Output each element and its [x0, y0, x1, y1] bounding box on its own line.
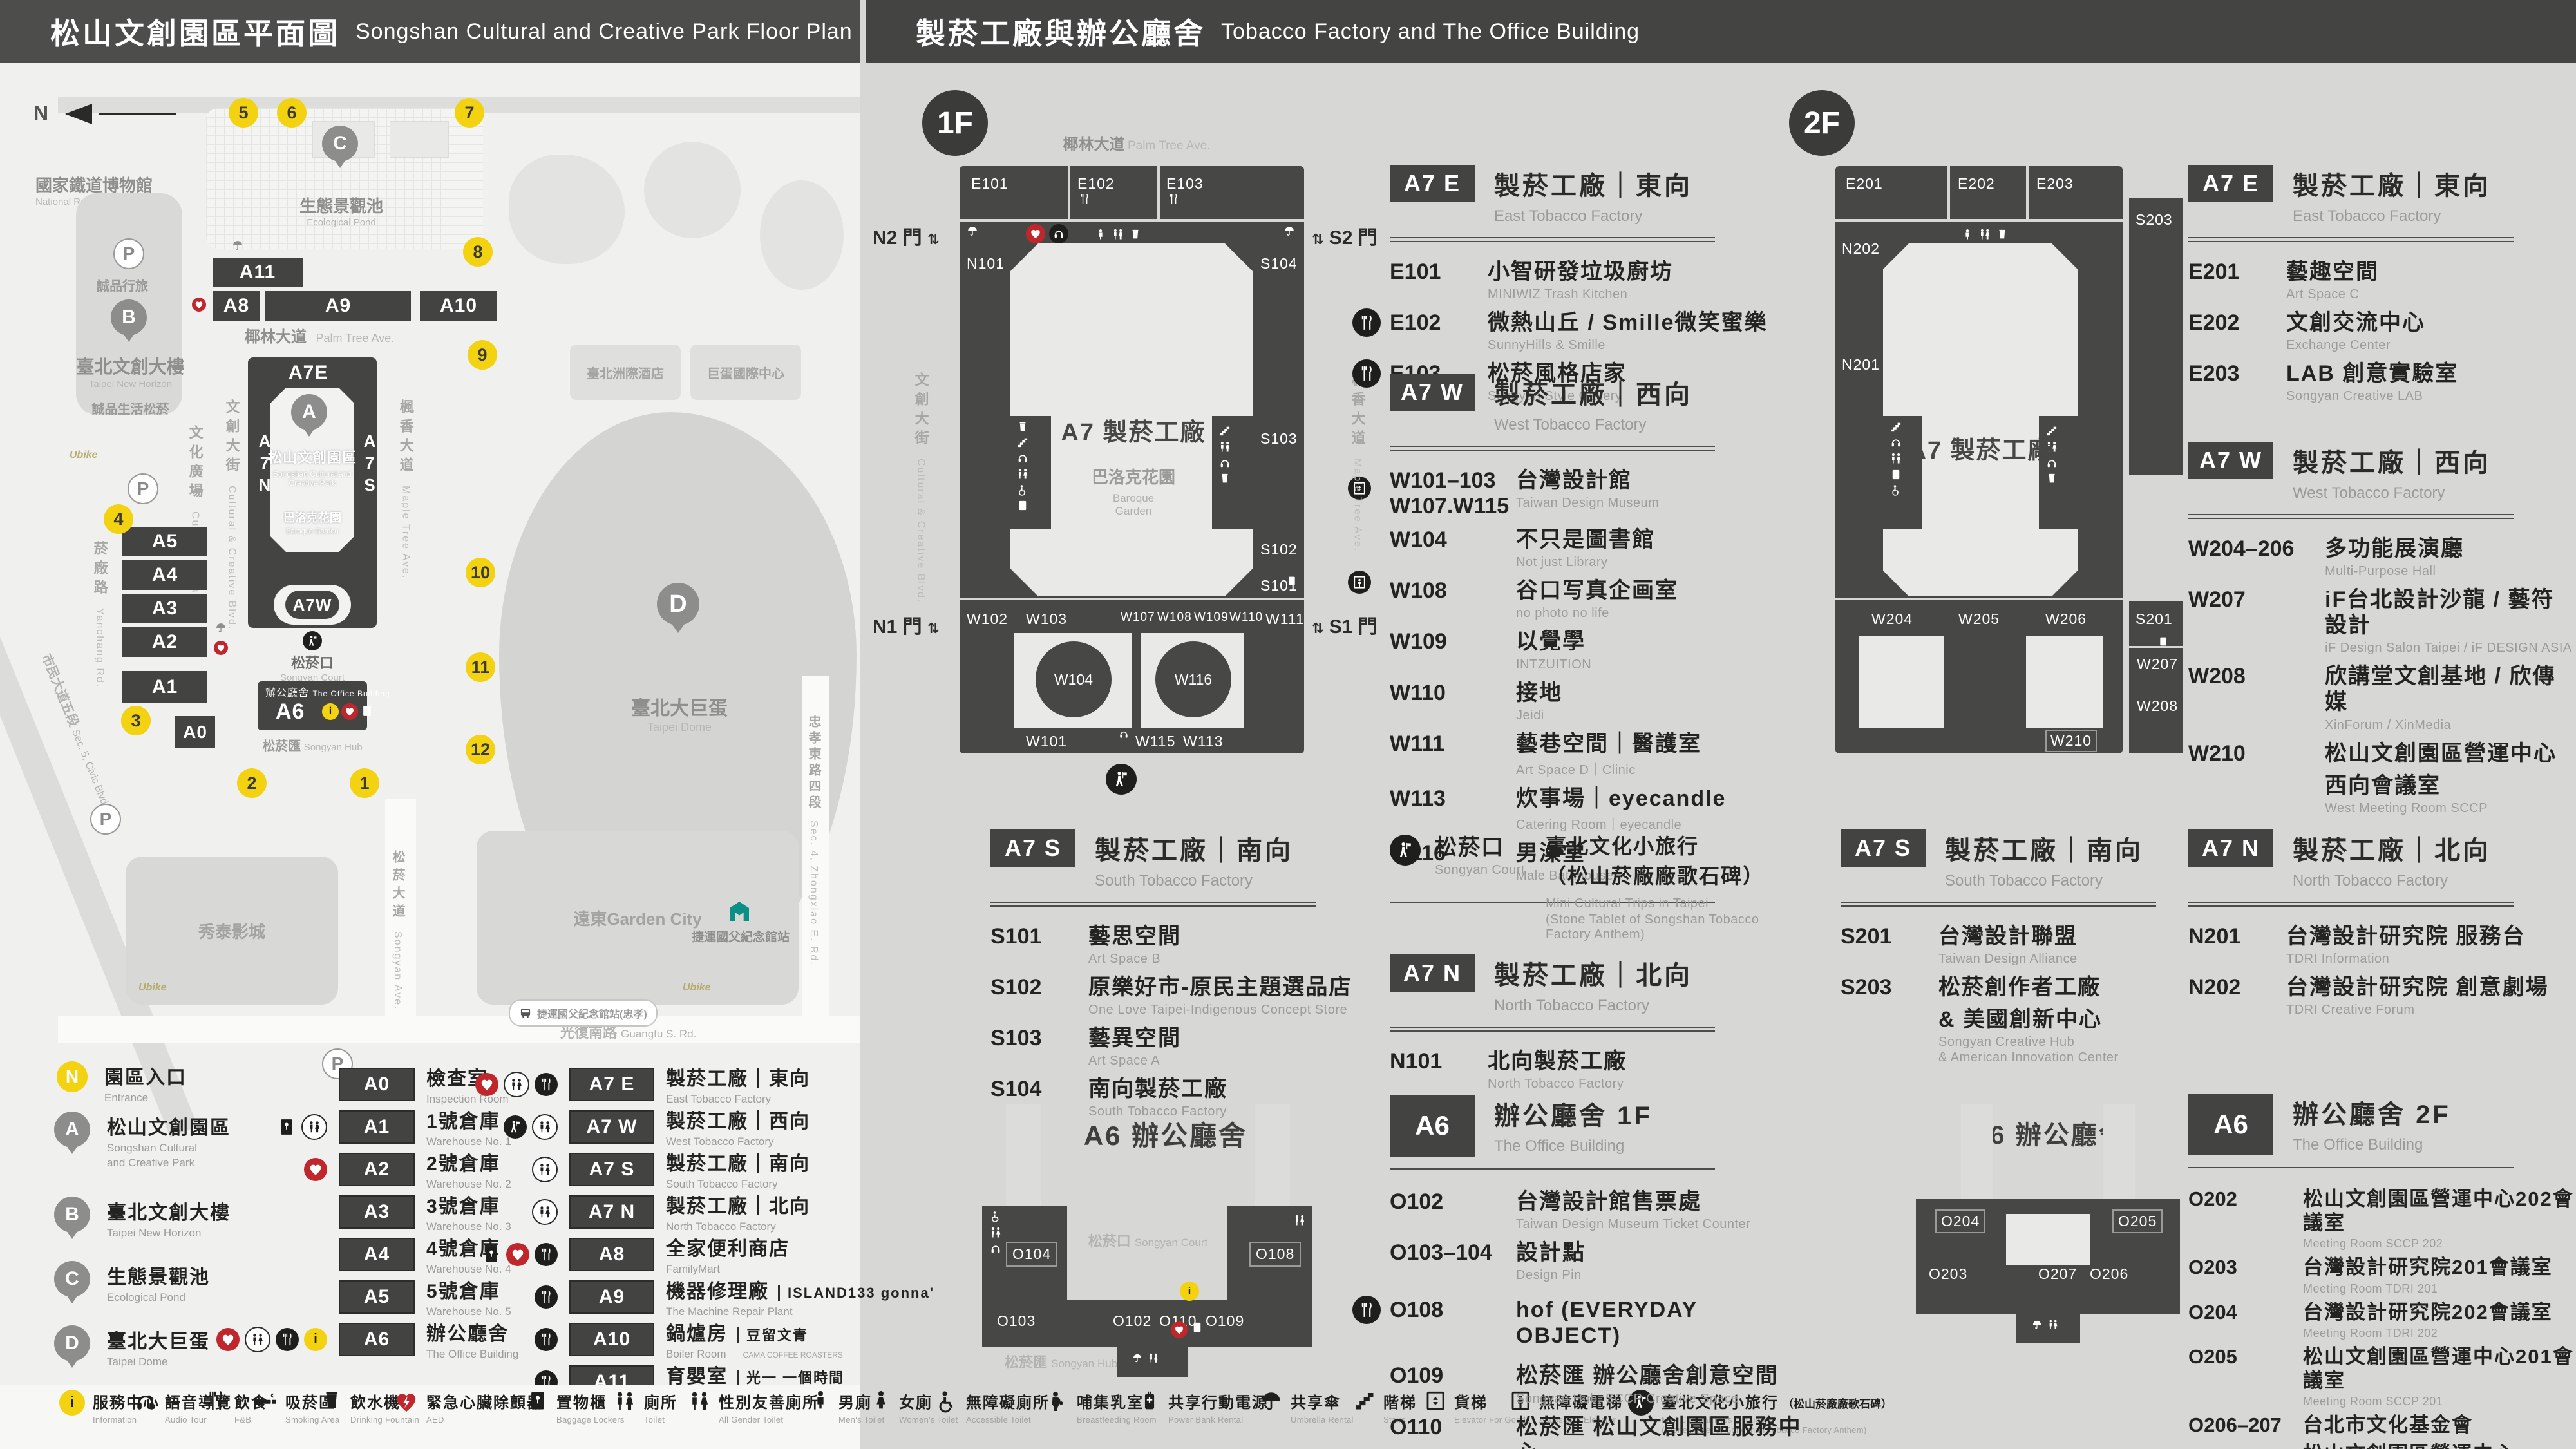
- room-code: W208: [2188, 663, 2325, 732]
- footer-aed-en: AED: [426, 1415, 544, 1425]
- room-code: W108: [1390, 578, 1516, 621]
- divider: [1390, 237, 1715, 242]
- legend-dome-text: 臺北大巨蛋Taipei Dome: [107, 1325, 210, 1368]
- headset-icon: [134, 1390, 157, 1413]
- plan2-room-n202: N202: [1842, 240, 1880, 258]
- gate-s2-label: S2 門: [1329, 227, 1378, 249]
- divider: [2188, 237, 2514, 242]
- mini-trip-icon: [504, 1115, 527, 1139]
- section-2f-south: A7 S 製菸工廠｜南向South Tobacco Factory S201台灣…: [1841, 829, 2188, 1065]
- umbrella-icon: [232, 240, 243, 251]
- section-a6-2f-header: A6 辦公廳舍 2FThe Office Building: [2188, 1094, 2575, 1155]
- a6-right-icons: [1293, 1214, 1306, 1227]
- plan1-gate-n1: N1 門 ⇅: [873, 611, 939, 639]
- legend-a10-icons: [461, 1328, 558, 1351]
- rooms-1f-south: S101藝思空間Art Space B S102原樂好市-原民主題選品店One …: [990, 923, 1377, 1119]
- toilet-icon: [532, 1114, 558, 1140]
- zhongxiao-zh: 忠孝東路四段: [806, 715, 820, 811]
- plan1-room-w107: W107: [1121, 611, 1155, 625]
- room-text: 不只是圖書館Not just Library: [1516, 527, 1655, 570]
- plan1-room-w101: W101: [1026, 733, 1067, 750]
- building-a3: A3: [122, 594, 207, 623]
- room-code: W109: [1390, 629, 1516, 672]
- plan2-top-icons: [1962, 228, 2008, 241]
- room-code: E102: [1390, 310, 1488, 353]
- a6-room-o109: O109: [1206, 1312, 1244, 1330]
- plan1-room-w116: W116: [1155, 641, 1231, 717]
- fnb-icon: [1352, 359, 1381, 388]
- room-en: Songyan Creative Hub: [1938, 1035, 2119, 1050]
- a6-2f-stub-left: [1961, 1104, 1993, 1201]
- legend-a8: A8全家便利商店FamilyMart: [461, 1233, 790, 1276]
- legend-park-text: 松山文創園區Songshan Culturaland Creative Park: [107, 1112, 231, 1170]
- title-1f-north-zh: 製菸工廠｜北向: [1494, 954, 1692, 992]
- badge-a6-2f: A6: [2188, 1094, 2273, 1155]
- room-en: Art Space C: [2286, 287, 2379, 302]
- legend-a9-icons: [461, 1285, 558, 1309]
- dome-center-label: 巨蛋國際中心: [707, 363, 784, 382]
- title-1f-south-en: South Tobacco Factory: [1095, 872, 1293, 890]
- a6-left-icons: [989, 1211, 1002, 1255]
- plan2-room-w205: W205: [1958, 611, 2000, 628]
- entrance-10: 10: [466, 558, 495, 587]
- legend-a2-icons: [245, 1158, 327, 1181]
- plan1-room-w104: W104: [1036, 641, 1112, 717]
- room-text: 多功能展演廳Multi-Purpose Hall: [2325, 536, 2464, 579]
- plan2-room-w210: W210: [2045, 730, 2097, 752]
- plan1-div: [960, 598, 1304, 600]
- plan1-room-e103: E103: [1166, 175, 1204, 193]
- plan1-street-top: 椰林大道 Palm Tree Ave.: [931, 131, 1343, 154]
- legend-a6-badge: A6: [339, 1323, 415, 1356]
- maple-zh: 楓香大道: [398, 399, 414, 477]
- plan1-center: A7 製菸工廠 巴洛克花園 Baroque Garden: [1050, 412, 1217, 518]
- legend-a7e-text: 製菸工廠｜東向East Tobacco Factory: [666, 1063, 810, 1106]
- a6-2f-stub-right: [2103, 1104, 2135, 1201]
- title-2f-east-en: East Tobacco Factory: [2293, 207, 2491, 225]
- dome-center-block: 巨蛋國際中心: [690, 345, 801, 400]
- legend-a7w-icons: [461, 1114, 558, 1140]
- room-en: Art Space D｜Clinic: [1516, 759, 1701, 778]
- footer-toilet: 廁所Toilet: [613, 1390, 677, 1425]
- room-text: 藝趣空間Art Space C: [2286, 259, 2379, 302]
- baroque-garden-label: 巴洛克花園 Baroque Garden: [258, 509, 367, 535]
- rooms-2f-south: S201台灣設計聯盟Taiwan Design Alliance S203松菸創…: [1841, 923, 2188, 1065]
- map-a7e-label: A7E: [289, 362, 328, 384]
- plan2-room-w206: W206: [2045, 611, 2087, 628]
- a6-hub-en: Songyan Hub: [1051, 1358, 1117, 1370]
- pin-a: A: [291, 394, 327, 430]
- map-office-zh: 辦公廳舍: [265, 688, 309, 699]
- room-zh: 台灣設計館售票處: [1516, 1189, 1750, 1215]
- legend-a10-text: 鍋爐房豆留文青Boiler RoomCAMA COFFEE ROASTERS: [666, 1318, 843, 1361]
- footer-powerbank-zh: 共享行動電源: [1168, 1390, 1269, 1412]
- info-icon: i: [59, 1390, 85, 1416]
- entrance-12: 12: [466, 735, 495, 764]
- room-text: 松菸創作者工廠& 美國創新中心Songyan Creative Hub& Ame…: [1938, 974, 2119, 1065]
- room-text: 台灣設計館售票處Taiwan Design Museum Ticket Coun…: [1516, 1189, 1750, 1232]
- legend-a6-icons: i: [214, 1327, 327, 1352]
- pin-a-letter: A: [291, 394, 327, 430]
- room-zh: 小智研發垃圾廚坊: [1488, 259, 1673, 285]
- plan1-room-w102: W102: [967, 611, 1008, 628]
- plan2-room-s203: S203: [2136, 211, 2173, 229]
- a6-room-o206: O206: [2090, 1265, 2128, 1283]
- footer-accessible-en: Accessible Toilet: [966, 1415, 1050, 1425]
- room-zh: 北向製菸工廠: [1488, 1048, 1627, 1074]
- plan1-room-e101: E101: [971, 175, 1009, 193]
- room-row-w113: W113炊事場｜eyecandleCatering Room｜eyecandle: [1390, 786, 1789, 833]
- floor-1f-plan: 椰林大道 Palm Tree Ave. E101 E102 E103 N2 門 …: [931, 160, 1343, 797]
- ubike-icon: Ubike: [138, 982, 167, 994]
- title-2f-south-en: South Tobacco Factory: [1945, 872, 2143, 890]
- accessible-toilet-icon: [935, 1390, 958, 1413]
- court-zh: 松菸口: [1435, 835, 1531, 860]
- fnb-icon: [1352, 1296, 1381, 1324]
- rooms-2f-west: W204–206多功能展演廳Multi-Purpose Hall W207iF台…: [2188, 536, 2575, 816]
- room-en: Multi-Purpose Hall: [2325, 564, 2464, 579]
- info-icon: i: [304, 1328, 327, 1351]
- gate-arrows-icon: ⇅: [927, 620, 939, 636]
- gate-n2-label: N2 門: [873, 227, 922, 249]
- divider: [2188, 902, 2514, 907]
- room-text: 松山文創園區營運中心西向會議室West Meeting Room SCCP: [2325, 741, 2557, 816]
- yanchang-rd-street: 菸廠路Yanchang Rd.: [90, 541, 109, 688]
- ccblvd-zh: 文創大街: [224, 399, 240, 477]
- title-1f-east-zh: 製菸工廠｜東向: [1494, 165, 1692, 202]
- a6-2f-plan: A6 辦公廳舍 O204 O205 O203 O207 O206: [1900, 1095, 2196, 1365]
- info-icon: i: [1180, 1282, 1199, 1301]
- room-zh: 台灣設計館: [1516, 468, 1659, 493]
- fnb-icon: [276, 1328, 299, 1351]
- divider: [990, 902, 1316, 907]
- a6-2f-stub-icons: [2032, 1319, 2059, 1331]
- room-zh: 松山文創園區營運中心201會議室: [2303, 1345, 2575, 1392]
- title-a6-2f-en: The Office Building: [2293, 1136, 2451, 1154]
- room-en: Not just Library: [1516, 555, 1655, 570]
- legend-a4-badge: A4: [339, 1238, 415, 1271]
- room-zh: 文創交流中心: [2286, 310, 2425, 336]
- power-bank-icon: [1139, 1390, 1160, 1412]
- footer-all-gender: 性別友善廁所All Gender Toilet: [688, 1390, 819, 1425]
- plaza-zh: 文化廣場: [187, 425, 204, 502]
- plan1-room-w108: W108: [1157, 611, 1192, 625]
- building-a1: A1: [122, 671, 207, 703]
- rooms-a6-2f: O202松山文創園區營運中心202會議室Meeting Room SCCP 20…: [2188, 1188, 2575, 1449]
- park-name-en1: Songshan Cultural and: [258, 469, 367, 478]
- room-zh: 台灣設計研究院 創意劇場: [2286, 974, 2548, 1000]
- map-a7w-label: A7W: [285, 591, 339, 619]
- room-text: hof (EVERYDAY OBJECT): [1516, 1297, 1802, 1349]
- legend-park-en2: and Creative Park: [107, 1157, 231, 1170]
- title-1f-west-zh: 製菸工廠｜西向: [1494, 374, 1692, 411]
- a6-hub-zh: 松菸匯: [1005, 1354, 1047, 1370]
- plan1-gate-s1: ⇅ S1 門: [1312, 611, 1378, 639]
- a6-room-o203: O203: [1929, 1265, 1967, 1283]
- badge-a7n: A7 N: [1390, 954, 1475, 992]
- room-row-o108: O108hof (EVERYDAY OBJECT): [1390, 1297, 1802, 1349]
- accessible-elevator-icon: [1348, 571, 1371, 594]
- legend-d-letter: D: [54, 1325, 90, 1361]
- room-en2: & American Innovation Center: [1938, 1050, 2119, 1065]
- a6-2f-plan-title: A6 辦公廳舍: [1900, 1114, 2196, 1151]
- room-code-2: W107.W115: [1390, 493, 1516, 519]
- drinking-fountain-icon: [321, 1390, 343, 1412]
- legend-a3-badge: A3: [339, 1195, 415, 1229]
- room-en: Songyan Creative LAB: [2286, 389, 2458, 404]
- legend-a7e-zh: 製菸工廠｜東向: [666, 1063, 810, 1091]
- legend-a9-sub: ISLAND133 gonna': [778, 1285, 934, 1301]
- dome-en: Taipei Dome: [612, 721, 747, 734]
- court-en: Songyan Court: [1435, 863, 1531, 878]
- locker-icon: [1191, 1321, 1203, 1333]
- legend-d-pin: D: [54, 1325, 90, 1361]
- legend-a10-en: Boiler Room: [666, 1348, 726, 1360]
- room-row-w101: W101–103W107.W115台灣設計館Taiwan Design Muse…: [1390, 468, 1789, 519]
- aed-icon: [506, 1243, 529, 1266]
- breastfeeding-icon: [1046, 1390, 1069, 1413]
- footer-toilet-en: Toilet: [644, 1415, 677, 1425]
- womens-toilet-icon: [871, 1390, 891, 1410]
- plan2-room-w208: W208: [2137, 697, 2178, 715]
- dome-landscape-2: [644, 142, 741, 238]
- eslite-spectrum-label: 誠品生活松菸: [61, 399, 200, 417]
- room-text: 台灣設計研究院 服務台TDRI Information: [2286, 923, 2525, 967]
- room-text: 松菸匯 辦公廳舍創意空間Songyan Hub, SCCP Creative S…: [1516, 1363, 1778, 1406]
- legend-pond-en: Ecological Pond: [107, 1291, 210, 1304]
- a6-room-o205: O205: [2112, 1209, 2163, 1233]
- room-row-w104: W104不只是圖書館Not just Library: [1390, 527, 1789, 570]
- legend-pond-zh: 生態景觀池: [107, 1261, 210, 1289]
- stairs-icon: [1354, 1390, 1376, 1412]
- legend-entrance: N 園區入口Entrance: [57, 1061, 187, 1104]
- room-en: Taiwan Design Museum: [1516, 496, 1659, 511]
- songyan-ave-zh: 松菸大道: [390, 850, 404, 922]
- palm-en: Palm Tree Ave.: [316, 332, 394, 345]
- footer-accessible-text: 無障礙廁所Accessible Toilet: [966, 1390, 1050, 1425]
- legend-entrance-zh: 園區入口: [104, 1061, 187, 1090]
- pin-c-letter: C: [322, 126, 358, 162]
- building-a0: A0: [175, 716, 215, 748]
- rooms-1f-north: N101北向製菸工廠North Tobacco Factory: [1390, 1048, 1789, 1092]
- room-row-w204-206: W204–206多功能展演廳Multi-Purpose Hall: [2188, 536, 2575, 579]
- fnb-icon: [205, 1390, 227, 1412]
- legend-dome-en: Taipei Dome: [107, 1356, 210, 1368]
- room-zh: 炊事場｜eyecandle: [1516, 786, 1726, 811]
- room-row-o205: O205松山文創園區營運中心201會議室Meeting Room SCCP 20…: [2188, 1345, 2575, 1408]
- umbrella-icon: [1283, 225, 1295, 237]
- room-code: W101–103W107.W115: [1390, 468, 1516, 519]
- parking-icon: P: [90, 804, 121, 835]
- room-code: E201: [2188, 259, 2286, 302]
- room-text: 炊事場｜eyecandleCatering Room｜eyecandle: [1516, 786, 1726, 833]
- room-en: Meeting Room SCCP 201: [2303, 1395, 2575, 1408]
- plan1-palm-en: Palm Tree Ave.: [1128, 139, 1211, 153]
- footer-toilet-text: 廁所Toilet: [644, 1390, 677, 1425]
- room-en: MINIWIZ Trash Kitchen: [1488, 287, 1673, 302]
- plan1-center-label: A7 製菸工廠: [1050, 412, 1217, 448]
- room-zh: 微熱山丘 / Smille微笑蜜樂: [1488, 310, 1768, 336]
- room-en: Art Space A: [1088, 1054, 1181, 1068]
- maple-ave-street: 楓香大道Maple Tree Ave.: [396, 399, 415, 579]
- room-row-e203: E203LAB 創意實驗室Songyan Creative LAB: [2188, 361, 2575, 404]
- locker-icon: [2158, 636, 2168, 647]
- room-zh: iF台北設計沙龍 / 藝符設計: [2325, 587, 2575, 638]
- a6-court-en: Songyan Court: [1135, 1236, 1207, 1249]
- map-court-label: 松菸口 Songyan Court: [264, 652, 361, 683]
- room-zh: 松山文創園區營運中心202會議室: [2303, 1188, 2575, 1235]
- badge-a7w: A7 W: [1390, 374, 1475, 411]
- room-code: O103–104: [1390, 1240, 1516, 1283]
- dome-zh: 臺北大巨蛋: [612, 692, 747, 721]
- plan1-ccblvd-zh: 文創大街: [913, 372, 929, 450]
- room-text: 接地Jeidi: [1516, 680, 1562, 723]
- title-2f-west-en: West Tobacco Factory: [2293, 484, 2491, 502]
- plan1-ccblvd-en: Cultural & Creative Blvd.: [916, 459, 927, 603]
- rooms-1f-west: W101–103W107.W115台灣設計館Taiwan Design Muse…: [1390, 468, 1789, 884]
- park-name-en2: Creative Park: [258, 478, 367, 488]
- baroque-zh: 巴洛克花園: [258, 509, 367, 526]
- footer-all-gender-zh: 性別友善廁所: [719, 1390, 819, 1412]
- fnb-icon: [1079, 193, 1090, 205]
- dome-landscape-3: [760, 180, 844, 290]
- room-text: 台灣設計聯盟Taiwan Design Alliance: [1938, 923, 2078, 967]
- a6-stub-left: [1006, 1104, 1041, 1207]
- map-hub-zh: 松菸匯: [262, 739, 301, 753]
- entrance-4: 4: [104, 504, 133, 534]
- palm-zh: 椰林大道: [245, 328, 307, 346]
- room-code: N201: [2188, 923, 2286, 967]
- fnb-icon: [535, 1073, 558, 1096]
- room-row-n101: N101北向製菸工廠North Tobacco Factory: [1390, 1048, 1789, 1092]
- room-row-o103-104: O103–104設計點Design Pin: [1390, 1240, 1802, 1283]
- room-code: W110: [1390, 680, 1516, 723]
- plan1-room-n101: N101: [967, 255, 1005, 272]
- title-1f-west-en: West Tobacco Factory: [1494, 416, 1692, 434]
- aed-icon: [304, 1158, 327, 1181]
- compass-n-label: N: [33, 102, 48, 126]
- map-office-en: The Office Building: [312, 689, 390, 698]
- room-code: N202: [2188, 974, 2286, 1018]
- entrance-1: 1: [350, 768, 379, 798]
- footer-lockers: 置物櫃Baggage Lockers: [527, 1390, 625, 1425]
- palm-ave-label: 椰林大道 Palm Tree Ave.: [245, 324, 394, 346]
- room-code: S101: [990, 923, 1088, 967]
- divider: [1841, 902, 2156, 907]
- yanchang-en: Yanchang Rd.: [95, 608, 106, 688]
- map-hub-label: 松菸匯 Songyan Hub: [261, 735, 364, 754]
- plan2-div: [1835, 219, 2123, 222]
- plan1-garden-zh: 巴洛克花園: [1050, 464, 1217, 488]
- room-zh: 松菸匯 松山文創園區服務中心: [1516, 1414, 1802, 1449]
- legend-new-horizon-zh: 臺北文創大樓: [107, 1197, 231, 1225]
- room-code: S102: [990, 974, 1088, 1018]
- entrance-3: 3: [121, 706, 151, 735]
- legend-park-en1: Songshan Cultural: [107, 1142, 231, 1155]
- legend-a7w-text: 製菸工廠｜西向West Tobacco Factory: [666, 1105, 810, 1148]
- guangfu-zh: 光復南路: [560, 1025, 617, 1041]
- room-row-n201: N201台灣設計研究院 服務台TDRI Information: [2188, 923, 2575, 967]
- fnb-icon: [535, 1285, 558, 1309]
- room-zh: 松菸創作者工廠: [1938, 974, 2119, 1000]
- a6-room-o108: O108: [1249, 1242, 1301, 1267]
- songyan-ave-en: Songyan Ave.: [392, 931, 403, 1010]
- room-zh: 藝異空間: [1088, 1025, 1181, 1051]
- legend-a7s-zh: 製菸工廠｜南向: [666, 1148, 810, 1176]
- plan2-room-w207: W207: [2137, 656, 2178, 673]
- legend-a7w-zh: 製菸工廠｜西向: [666, 1105, 810, 1133]
- legend-a10-sub-en: CAMA COFFEE ROASTERS: [735, 1350, 843, 1359]
- room-zh2: 西向會議室: [2325, 773, 2557, 799]
- intercontinental-label: 臺北洲際酒店: [587, 363, 664, 382]
- a6-room-o103: O103: [997, 1312, 1036, 1330]
- divider: [2188, 1167, 2514, 1171]
- plan1-gate-n2: N2 門 ⇅: [873, 222, 939, 250]
- title-2f-east-zh: 製菸工廠｜東向: [2293, 165, 2491, 202]
- building-a2: A2: [122, 627, 207, 657]
- section-2f-south-titles: 製菸工廠｜南向South Tobacco Factory: [1945, 829, 2143, 890]
- section-1f-north-titles: 製菸工廠｜北向North Tobacco Factory: [1494, 954, 1692, 1015]
- section-2f-south-header: A7 S 製菸工廠｜南向South Tobacco Factory: [1841, 829, 2188, 890]
- plan1-div: [1068, 166, 1070, 219]
- room-row-e201: E201藝趣空間Art Space C: [2188, 259, 2575, 302]
- legend-entrance-en: Entrance: [104, 1092, 187, 1104]
- map-court-zh: 松菸口: [264, 652, 361, 672]
- aed-icon: [216, 1328, 240, 1351]
- legend-a10: A10鍋爐房豆留文青Boiler RoomCAMA COFFEE ROASTER…: [461, 1318, 843, 1361]
- room-code: O202: [2188, 1188, 2303, 1251]
- room-zh2: 松山文創園區營運中心: [2303, 1443, 2575, 1449]
- court-line1-en: Mini Cultural Trips in Taipei: [1546, 896, 1802, 911]
- legend-a7s-text: 製菸工廠｜南向South Tobacco Factory: [666, 1148, 810, 1191]
- legend-a11-sub: 光一 一個時間: [737, 1370, 844, 1386]
- pin-d-letter: D: [657, 583, 699, 625]
- ccblvd-en: Cultural & Creative Blvd.: [227, 486, 238, 630]
- locker-icon: [277, 1117, 296, 1137]
- room-zh: 欣講堂文創基地 / 欣傳媒: [2325, 663, 2575, 715]
- room-text: 欣講堂文創基地 / 欣傳媒XinForum / XinMedia: [2325, 663, 2575, 732]
- room-row-o203: O203台灣設計研究院201會議室Meeting Room TDRI 201: [2188, 1256, 2575, 1296]
- room-code: O109: [1390, 1363, 1516, 1406]
- footer-powerbank-en: Power Bank Rental: [1168, 1415, 1269, 1425]
- legend-a2-badge: A2: [339, 1153, 415, 1186]
- legend-a7s-en: South Tobacco Factory: [666, 1178, 810, 1191]
- room-row-o202: O202松山文創園區營運中心202會議室Meeting Room SCCP 20…: [2188, 1188, 2575, 1251]
- room-code: W207: [2188, 587, 2325, 656]
- section-2f-west-titles: 製菸工廠｜西向West Tobacco Factory: [2293, 442, 2491, 502]
- legend-a7w: A7 W製菸工廠｜西向West Tobacco Factory: [461, 1105, 810, 1148]
- plan1-palm-zh: 椰林大道: [1063, 136, 1125, 153]
- legend-a8-text: 全家便利商店FamilyMart: [666, 1233, 790, 1276]
- room-text: 台灣設計館Taiwan Design Museum: [1516, 468, 1659, 519]
- legend-entrance-text: 園區入口Entrance: [104, 1061, 187, 1104]
- room-row-w109: W109以覺學INTZUITION: [1390, 629, 1789, 672]
- a6-room-o207: O207: [2038, 1265, 2077, 1283]
- room-code: W104: [1390, 527, 1516, 570]
- aed-icon: [192, 298, 206, 312]
- plan1-div: [1157, 166, 1160, 219]
- legend-new-horizon-en: Taipei New Horizon: [107, 1227, 231, 1240]
- building-a5: A5: [122, 527, 207, 556]
- section-2f-east-header: A7 E 製菸工廠｜東向East Tobacco Factory: [2188, 165, 2575, 225]
- room-en: Jeidi: [1516, 708, 1562, 723]
- room-code: S103: [990, 1025, 1088, 1068]
- title-2f-north-en: North Tobacco Factory: [2293, 872, 2491, 890]
- legend-a7n-text: 製菸工廠｜北向North Tobacco Factory: [666, 1190, 810, 1233]
- badge-a7s: A7 S: [990, 829, 1075, 867]
- room-code: W210: [2188, 741, 2325, 816]
- bus-icon: [519, 1007, 532, 1019]
